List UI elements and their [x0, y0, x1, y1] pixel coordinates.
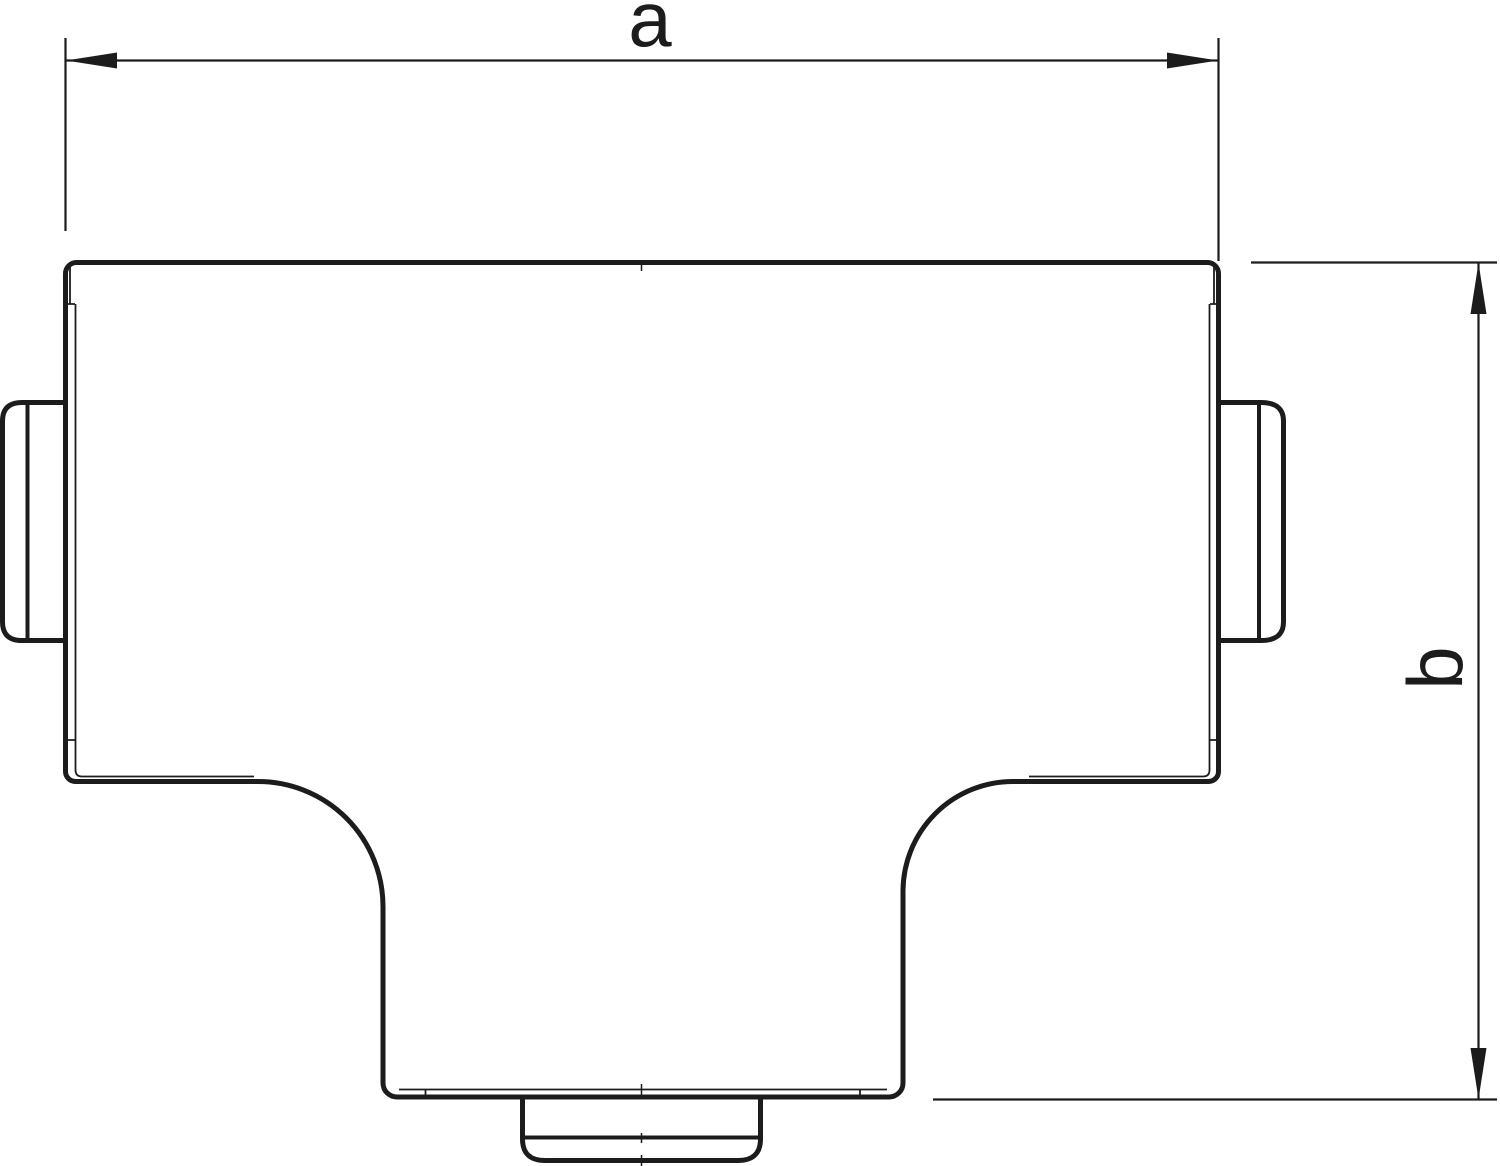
t-piece-drawing: a b: [0, 0, 1500, 1166]
dim-a-extension-lines: [66, 38, 1219, 261]
dim-b-arrow-bottom: [1471, 1048, 1487, 1099]
left-coupling-stub: [3, 403, 66, 641]
dim-b-label: b: [1391, 646, 1479, 689]
dim-a-arrow-right: [1167, 53, 1218, 69]
technical-drawing-canvas: a b: [0, 0, 1500, 1166]
right-coupling-stub: [1218, 403, 1284, 641]
part-outline: [66, 263, 1219, 1098]
dim-b-arrow-top: [1471, 263, 1487, 314]
bottom-coupling-stub: [523, 1098, 761, 1161]
dim-a-arrow-left: [66, 53, 117, 69]
dim-a-label: a: [628, 0, 672, 63]
